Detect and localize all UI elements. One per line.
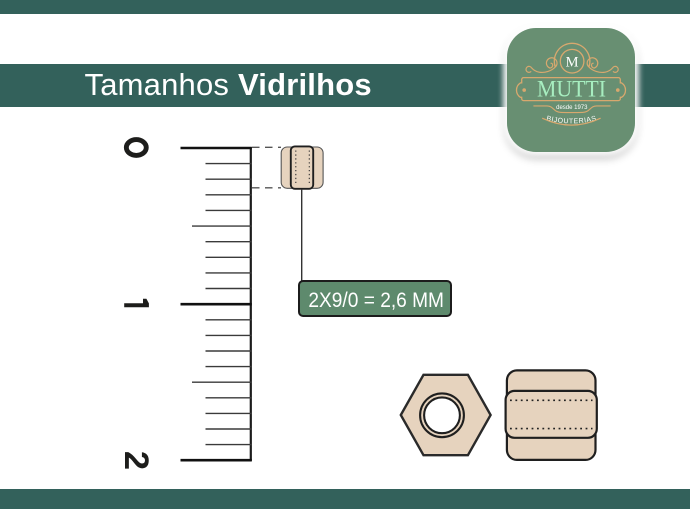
svg-text:M: M xyxy=(566,54,579,70)
svg-text:desde 1973: desde 1973 xyxy=(556,105,588,111)
svg-text:BIJOUTERIAS: BIJOUTERIAS xyxy=(546,115,598,125)
svg-text:2: 2 xyxy=(117,451,155,470)
svg-text:MUTTI: MUTTI xyxy=(537,76,606,101)
